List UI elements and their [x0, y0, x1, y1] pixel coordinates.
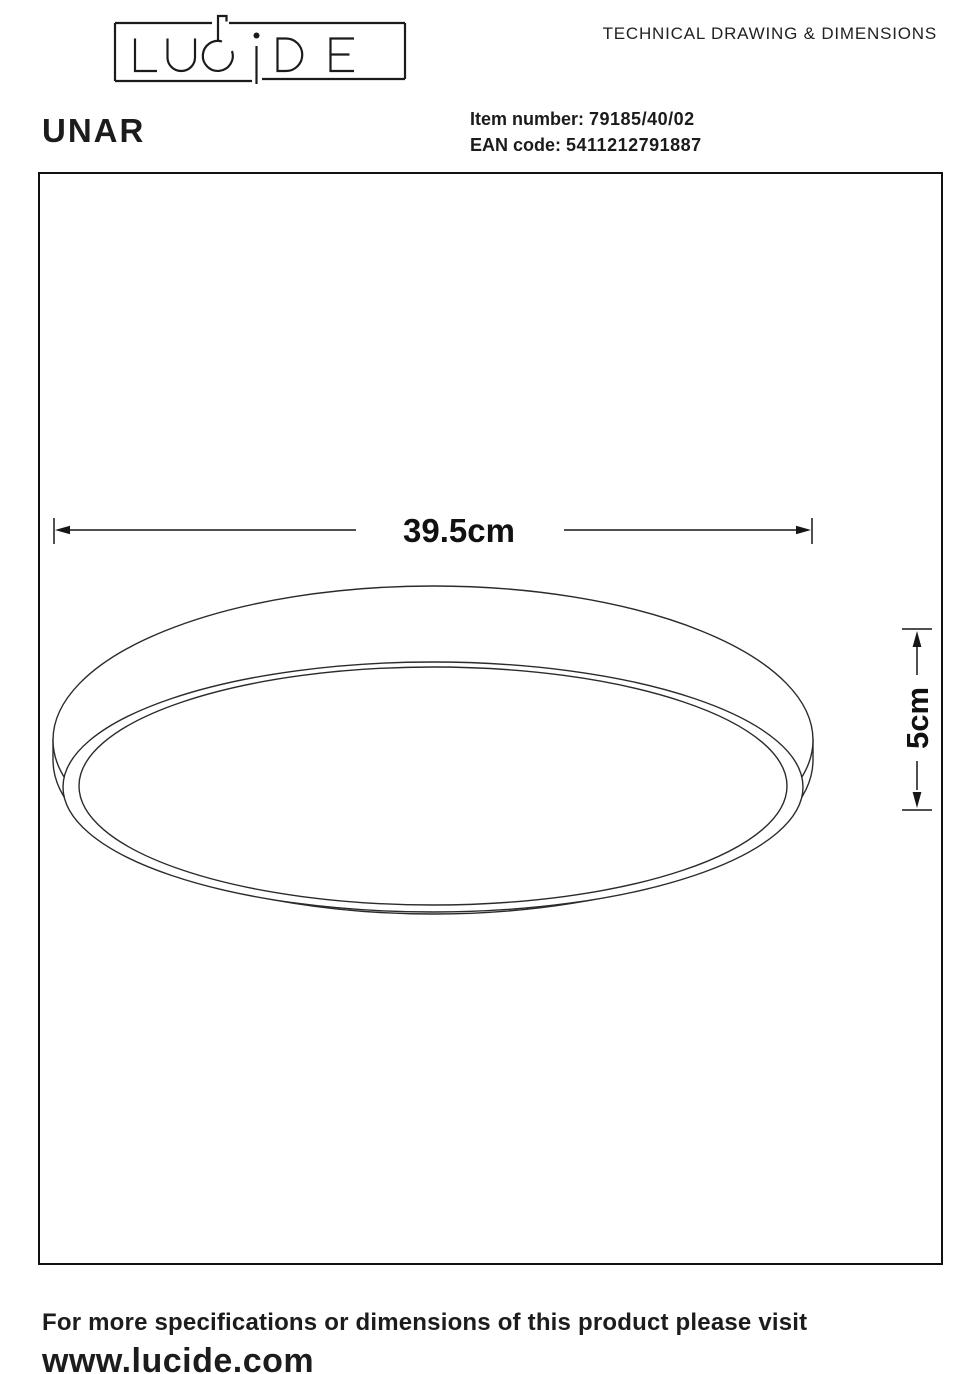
height-dim-up-arrow	[913, 631, 922, 647]
item-number-label: Item number:	[470, 109, 584, 129]
width-dim-left-arrow	[55, 526, 70, 534]
glass-outer-rim	[63, 662, 803, 912]
ean-row: EAN code:5411212791887	[470, 132, 702, 158]
technical-drawing-sheet: TECHNICAL DRAWING & DIMENSIONS UNAR Item…	[0, 0, 970, 1374]
item-number-row: Item number:79185/40/02	[470, 106, 702, 132]
lamp-technical-drawing: 39.5cm 5cm	[40, 174, 941, 1263]
width-dim-right-arrow	[796, 526, 811, 534]
product-codes: Item number:79185/40/02 EAN code:5411212…	[470, 106, 702, 158]
ean-value: 5411212791887	[566, 135, 702, 155]
sheet-title: TECHNICAL DRAWING & DIMENSIONS	[603, 24, 937, 44]
height-dim-down-arrow	[913, 792, 922, 808]
drawing-frame: 39.5cm 5cm	[38, 172, 943, 1265]
product-name: UNAR	[42, 112, 145, 150]
width-dimension: 39.5cm	[54, 512, 812, 549]
footer-website: www.lucide.com	[42, 1344, 807, 1374]
footer: For more specifications or dimensions of…	[42, 1311, 807, 1374]
width-dim-label: 39.5cm	[403, 512, 515, 549]
height-dimension: 5cm	[900, 629, 935, 810]
footer-note: For more specifications or dimensions of…	[42, 1311, 807, 1335]
logo-letters	[135, 16, 354, 84]
logo-frame	[115, 23, 405, 81]
item-number-value: 79185/40/02	[589, 109, 695, 129]
lucide-logo	[0, 0, 440, 100]
ean-label: EAN code:	[470, 135, 561, 155]
height-dim-label: 5cm	[900, 687, 935, 749]
